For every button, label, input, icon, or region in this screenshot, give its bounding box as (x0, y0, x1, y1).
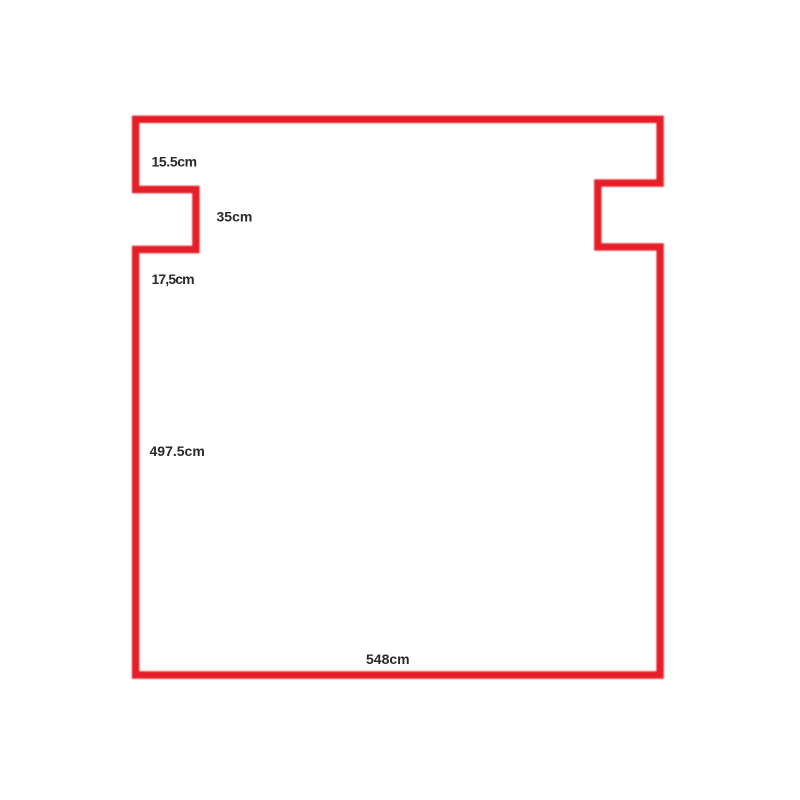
svg-text:548cm: 548cm (366, 651, 410, 667)
svg-text:17,5cm: 17,5cm (152, 271, 195, 287)
svg-text:35cm: 35cm (217, 209, 253, 225)
svg-text:15.5cm: 15.5cm (152, 154, 197, 170)
svg-text:497.5cm: 497.5cm (150, 443, 205, 459)
